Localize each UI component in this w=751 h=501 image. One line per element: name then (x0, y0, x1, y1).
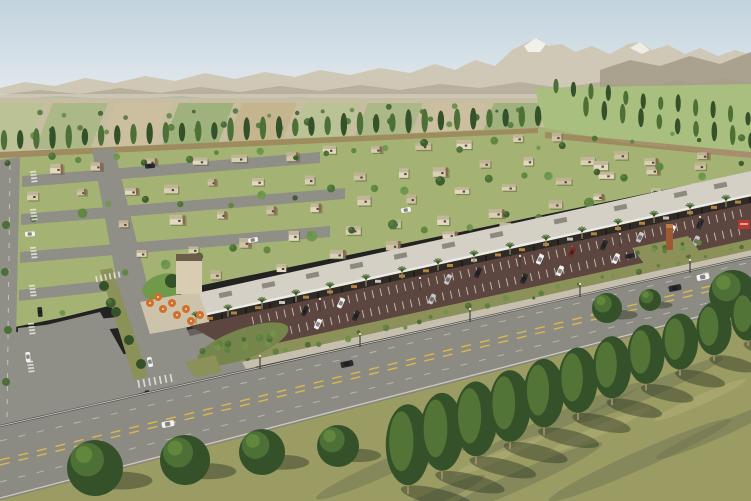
bed-shrub-icon-highlight (225, 341, 228, 344)
island-shrub-icon (696, 240, 702, 246)
yard-tree-icon (544, 172, 553, 181)
shrub-icon (601, 275, 604, 278)
yard-tree-icon-highlight (491, 138, 495, 142)
house-roof (457, 140, 472, 144)
yard-tree-icon-highlight (143, 197, 146, 200)
yard-tree-icon (229, 244, 237, 252)
verge-tree-icon (2, 378, 10, 386)
shrub-icon (729, 248, 733, 252)
lamp-head-icon (259, 355, 261, 357)
house-accent-wall (214, 179, 217, 186)
shrub-icon (429, 315, 433, 319)
shrub-icon (305, 342, 311, 348)
house-window (602, 166, 604, 168)
distant-tree-icon (350, 108, 354, 112)
shrub-icon (316, 342, 321, 347)
yard-tree-icon (559, 142, 566, 149)
poplar-tree-icon (98, 125, 104, 146)
crosswalk-stripe (110, 273, 111, 279)
tree-sunlit (642, 291, 649, 298)
distant-tree-icon (166, 113, 172, 119)
house-window (599, 197, 601, 199)
house-window (216, 275, 218, 277)
house-roof (189, 247, 199, 250)
yard-tree-icon (382, 145, 388, 151)
yard-tree-icon (594, 169, 601, 176)
yard-tree-icon-highlight (401, 187, 405, 191)
palm-crown-icon (227, 308, 229, 310)
house-roof (399, 168, 408, 172)
lamp-head-icon (699, 216, 701, 218)
car-w (25, 352, 31, 362)
crosswalk-stripe (119, 272, 120, 278)
house-window (607, 175, 609, 177)
house-window (33, 196, 35, 198)
house-roof (277, 264, 287, 267)
crosswalk-stripe (30, 210, 36, 211)
yard-tree-icon-highlight (422, 227, 425, 230)
palm-crown-icon (653, 214, 655, 216)
distant-tree-icon (77, 125, 83, 131)
crosswalk-stripe (96, 276, 97, 282)
poplar-tree-icon (693, 121, 699, 137)
house-roof (524, 157, 533, 161)
house-roof (305, 176, 314, 180)
poplar-sunlit-side (699, 307, 718, 346)
island-shrub-icon (635, 250, 640, 255)
poplar-tree-icon (211, 122, 217, 139)
yard-tree-icon-highlight (560, 143, 563, 146)
house-accent-wall (224, 211, 227, 218)
yard-tree-icon-highlight (187, 156, 190, 159)
house-roof (354, 173, 366, 176)
shrub-icon (417, 320, 422, 325)
storefront-light (519, 248, 525, 251)
palm-crown-icon (509, 246, 511, 248)
distant-tree-icon (62, 113, 67, 118)
umbrella-pole-tip (162, 308, 164, 310)
poplar-sunlit-side (389, 411, 413, 471)
lamp-head-icon (469, 308, 471, 310)
yard-tree-icon (293, 155, 298, 160)
house-roof (211, 270, 221, 274)
crosswalk-stripe (29, 330, 35, 331)
poplar-tree-icon (745, 112, 750, 125)
crosswalk-stripe (31, 295, 37, 296)
poplar-tree-icon (17, 130, 23, 149)
house-roof (164, 185, 178, 189)
shrub-icon (273, 348, 279, 354)
poplar-tree-icon (535, 106, 541, 126)
yard-tree-icon-highlight (389, 221, 393, 225)
house-roof (137, 250, 147, 253)
yard-tree-icon-highlight (522, 173, 525, 176)
house-window (404, 173, 406, 175)
house-window (365, 201, 367, 203)
median-tree-icon (111, 307, 121, 317)
umbrella-pole-tip (199, 314, 201, 316)
palm-crown-icon (545, 238, 547, 240)
house-window (172, 189, 174, 191)
median-tree-icon (136, 359, 146, 369)
poplar-tree-icon (657, 114, 663, 129)
yard-tree-icon (697, 138, 701, 142)
storefront-light (279, 301, 285, 304)
yard-tree-icon-highlight (76, 158, 79, 161)
crosswalk-stripe (105, 274, 106, 280)
verge-tree-icon (1, 268, 9, 276)
crosswalk-stripe (30, 292, 36, 293)
shrub-icon (283, 347, 288, 352)
yard-tree-icon-highlight (328, 185, 332, 189)
house-window (412, 199, 414, 201)
house-window (178, 220, 180, 222)
poplar-tree-icon (324, 116, 330, 135)
distant-tree-icon (267, 114, 271, 118)
aerial-render-image (0, 0, 751, 501)
yard-tree-icon (161, 260, 171, 270)
house-window (282, 268, 284, 270)
shrub-icon (611, 275, 614, 278)
palm-crown-icon (329, 285, 331, 287)
yard-tree-icon (536, 146, 540, 150)
poplar-tree-icon (728, 105, 733, 122)
umbrella-pole-tip (190, 320, 192, 322)
crosswalk-stripe (30, 333, 36, 334)
crosswalk-stripe (28, 324, 34, 325)
tree-sunlit (75, 446, 92, 463)
shrub-icon-highlight (346, 337, 349, 340)
yard-tree-icon-highlight (114, 154, 117, 157)
poplar-tree-icon (82, 128, 88, 145)
house-window (701, 166, 703, 168)
poplar-tree-icon (553, 79, 558, 94)
poplar-tree-icon (163, 122, 169, 143)
umbrella-pole-tip (176, 314, 178, 316)
shrub-icon (739, 245, 743, 249)
poplar-tree-icon (583, 97, 589, 117)
distant-tree-icon-highlight (508, 123, 511, 126)
house-window (317, 208, 319, 210)
distant-tree-icon (295, 111, 299, 115)
yard-tree-icon (630, 140, 634, 144)
shrub-icon-highlight (466, 303, 469, 306)
poplar-tree-icon (588, 83, 593, 99)
car-glass (148, 164, 152, 168)
poplar-tree-icon (341, 113, 347, 136)
crosswalk-stripe (31, 251, 37, 252)
crosswalk-stripe (114, 272, 115, 278)
house-window (441, 172, 443, 174)
car-glass (26, 355, 30, 359)
house-roof (455, 187, 469, 190)
house-window (463, 191, 465, 193)
umbrella-pole-tip (185, 308, 187, 310)
yard-tree-icon (348, 227, 355, 234)
yard-tree-icon-highlight (79, 209, 83, 213)
poplar-tree-icon (130, 124, 136, 144)
yard-tree-icon-highlight (123, 270, 126, 273)
poplar-tree-icon (33, 128, 39, 149)
tree-sunlit (246, 434, 260, 448)
poplar-tree-icon (602, 101, 608, 120)
house-window (377, 150, 379, 152)
crosswalk-stripe (29, 286, 35, 287)
house-accent-wall (136, 188, 139, 195)
poplar-tree-icon (676, 94, 681, 112)
palm-crown-icon (437, 261, 439, 263)
poplar-sunlit-side (665, 318, 685, 359)
lamp-head-icon (579, 283, 581, 285)
house-accent-wall (183, 215, 186, 225)
house-roof (581, 157, 595, 160)
shrub-icon-highlight (384, 325, 387, 328)
bed-shrub-icon (225, 341, 232, 348)
yard-tree-icon-highlight (178, 202, 181, 205)
island-shrub-icon (680, 246, 686, 252)
shrub-icon (502, 295, 509, 302)
house-window (142, 254, 144, 256)
palm-crown-icon (581, 230, 583, 232)
house-accent-wall (446, 167, 449, 176)
bed-shrub-icon (241, 337, 246, 342)
tree-sunlit (168, 441, 183, 456)
house-roof (513, 135, 523, 138)
yard-tree-icon-highlight (264, 247, 267, 250)
house-window (360, 177, 362, 179)
palm-crown-icon (473, 254, 475, 256)
house-window (444, 220, 446, 222)
bed-shrub-icon-highlight (215, 345, 218, 348)
distant-tree-icon (123, 115, 128, 120)
house-window (310, 180, 312, 182)
poplar-tree-icon (502, 109, 508, 127)
crosswalk-stripe (101, 275, 102, 281)
tree-sunlit (597, 296, 606, 305)
shrub-icon (443, 310, 448, 315)
bed-shrub-icon-highlight (257, 335, 260, 338)
house-roof (552, 133, 562, 137)
house-window (57, 169, 59, 171)
house-window (654, 171, 656, 173)
island-shrub-icon (681, 242, 685, 246)
tree-sunlit (323, 430, 336, 443)
storefront-light (207, 317, 213, 320)
poplar-tree-icon (638, 108, 644, 127)
house-roof (119, 220, 129, 223)
distant-tree-icon-highlight (168, 125, 171, 128)
poplar-sunlit-side (458, 388, 481, 443)
crosswalk-stripe (32, 181, 38, 182)
yard-tree-icon (263, 246, 270, 253)
house-window (557, 137, 559, 139)
house-roof (437, 216, 449, 220)
poplar-tree-icon (405, 109, 411, 133)
poplar-tree-icon (712, 122, 718, 141)
crosswalk-stripe (31, 213, 37, 214)
yard-tree-icon-highlight (421, 140, 425, 144)
distant-tree-icon (452, 103, 458, 109)
lamp-head-icon (619, 233, 621, 235)
house-roof (549, 200, 562, 203)
house-roof (695, 162, 706, 165)
house-roof (357, 196, 370, 200)
storefront-light (591, 232, 597, 235)
distant-tree-icon (98, 111, 103, 116)
yard-tree-icon-highlight (258, 148, 261, 151)
house-accent-wall (380, 146, 383, 153)
house-accent-wall (155, 158, 158, 165)
house-window (201, 161, 203, 163)
tree-sunlit (716, 275, 730, 289)
tower-band (176, 254, 202, 261)
shrub-icon (403, 326, 407, 330)
crosswalk-stripe (30, 248, 36, 249)
house-window (124, 224, 126, 226)
scene-canvas (0, 0, 751, 501)
yard-tree-icon (327, 185, 335, 193)
house-roof (502, 184, 516, 187)
poplar-tree-icon (195, 121, 201, 142)
crosswalk-stripe (31, 254, 37, 255)
storefront-light (423, 269, 429, 272)
house-roof (27, 192, 38, 196)
bed-shrub-icon (214, 345, 220, 351)
yard-tree-icon (485, 175, 493, 183)
house-roof (651, 188, 661, 191)
storefront-light (567, 238, 573, 241)
house-window (622, 155, 624, 157)
house-window (465, 145, 467, 147)
umbrella-pole-tip (149, 302, 151, 304)
storefront-light (351, 285, 357, 288)
island-shrub-icon (651, 248, 656, 253)
distant-tree-icon (233, 108, 239, 114)
palm-crown-icon (365, 277, 367, 279)
house-accent-wall (707, 152, 710, 159)
poplar-tree-icon (438, 111, 444, 131)
bed-shrub-icon-highlight (242, 343, 245, 346)
distant-tree-icon (386, 104, 392, 110)
poplar-tree-icon (179, 123, 185, 142)
shrub-icon (538, 291, 544, 297)
yard-tree-icon (292, 195, 297, 200)
poplar-tree-icon (675, 118, 681, 134)
lamp-head-icon (519, 255, 521, 257)
yard-tree-icon-highlight (437, 177, 441, 181)
yard-tree-icon (388, 220, 398, 230)
crosswalk-stripe (29, 327, 35, 328)
house-roof (556, 178, 572, 181)
poplar-tree-icon (1, 130, 7, 150)
yard-tree-icon-highlight (349, 228, 352, 231)
verge-tree-icon (4, 326, 12, 334)
lamp-head-icon (359, 333, 361, 335)
yard-tree-icon (105, 201, 111, 207)
yard-tree-icon-highlight (162, 261, 166, 265)
house-window (486, 164, 488, 166)
house-accent-wall (274, 206, 277, 214)
poplar-tree-icon (710, 101, 715, 118)
poplar-tree-icon (730, 125, 736, 145)
lamp-head-icon (319, 298, 321, 300)
house-roof (599, 172, 614, 175)
house-window (294, 236, 296, 238)
crosswalk-stripe (29, 371, 35, 372)
poplar-tree-icon (470, 108, 476, 130)
house-roof (614, 151, 628, 155)
verge-tree-icon (2, 221, 10, 229)
crosswalk-stripe (32, 257, 38, 258)
poplar-tree-icon (658, 97, 663, 110)
poplar-tree-icon (519, 106, 525, 127)
poplar-tree-icon (260, 117, 266, 140)
house-window (97, 166, 99, 168)
poplar-tree-icon (693, 99, 698, 116)
yard-tree-icon (400, 187, 408, 195)
median-tree-icon (99, 281, 109, 291)
house-window (588, 161, 590, 163)
yard-tree-icon-highlight (49, 153, 52, 156)
yard-tree-icon (113, 153, 120, 160)
poplar-tree-icon (389, 113, 395, 132)
poplar-tree-icon (357, 112, 363, 135)
monument-cap (666, 224, 673, 228)
yard-tree-icon-highlight (594, 169, 597, 172)
umbrella-pole-tip (171, 302, 173, 304)
poplar-tree-icon (454, 109, 460, 131)
palm-crown-icon (689, 206, 691, 208)
house-window (132, 191, 134, 193)
yard-tree-icon-highlight (739, 135, 742, 138)
lamp-head-icon (419, 277, 421, 279)
shrub-icon (555, 284, 560, 289)
shrub-icon (704, 255, 707, 258)
crosswalk-stripe (31, 175, 37, 176)
distant-tree-icon (428, 116, 433, 121)
crosswalk-stripe (31, 178, 37, 179)
poplar-tree-icon (373, 114, 379, 133)
shrub-icon (657, 264, 661, 268)
yard-tree-icon-highlight (457, 147, 460, 150)
yard-tree-icon-highlight (107, 299, 112, 304)
yard-tree-icon-highlight (258, 192, 262, 196)
house-window (194, 250, 196, 252)
yard-tree-icon-highlight (60, 311, 63, 314)
house-accent-wall (84, 189, 87, 196)
yard-tree-icon-highlight (504, 212, 507, 215)
poplar-sunlit-side (424, 400, 448, 458)
car-d (37, 307, 43, 317)
crosswalk-stripe (32, 219, 38, 220)
house-window (556, 205, 558, 207)
house-window (704, 156, 706, 158)
poplar-tree-icon (244, 117, 250, 140)
storefront-light (495, 253, 501, 256)
distant-tree-icon-highlight (305, 119, 308, 122)
palm-crown-icon (401, 269, 403, 271)
car-d (145, 163, 155, 169)
umbrella-pole-tip (157, 296, 159, 298)
yard-tree-icon (351, 148, 356, 153)
yard-tree-icon-highlight (486, 176, 490, 180)
poplar-tree-icon (49, 126, 55, 149)
storefront-light (303, 296, 309, 299)
house-accent-wall (343, 250, 346, 259)
shrub-icon-highlight (637, 269, 640, 272)
house-roof (594, 161, 608, 165)
yard-tree-icon-highlight (308, 232, 313, 237)
